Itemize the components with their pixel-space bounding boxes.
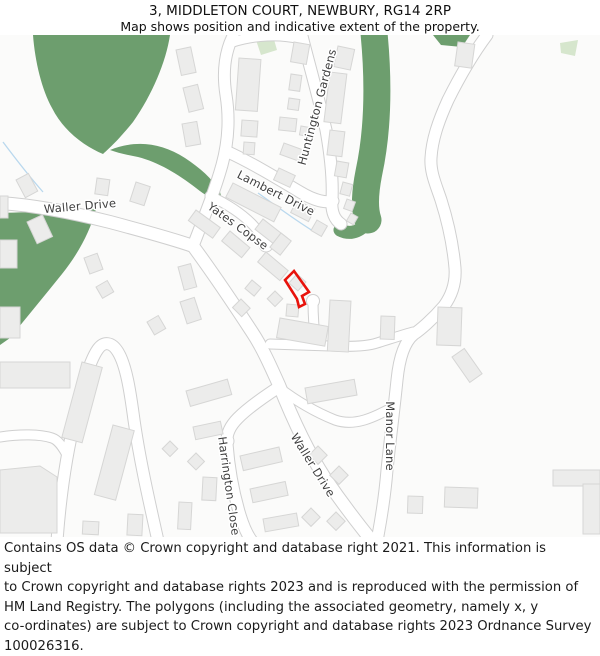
text-line: co-ordinates) are subject to Crown copyr… (4, 617, 596, 637)
building (178, 502, 192, 530)
cul-de-sac (307, 295, 319, 307)
building (243, 142, 255, 155)
building (334, 161, 348, 178)
map-canvas: Waller DriveLambert DriveYates CopseHunt… (0, 35, 600, 537)
building (0, 240, 17, 268)
map-header: 3, MIDDLETON COURT, NEWBURY, RG14 2RP Ma… (0, 0, 600, 35)
building (279, 117, 297, 132)
building (0, 466, 57, 533)
building (82, 521, 99, 535)
building (437, 307, 462, 346)
building (455, 42, 475, 68)
text-line: 100026316. (4, 637, 596, 656)
green-strip (365, 35, 377, 220)
building (327, 300, 351, 352)
building (286, 304, 299, 317)
building (202, 477, 217, 501)
building (289, 74, 302, 91)
building (235, 58, 261, 111)
building (241, 120, 258, 137)
copyright-notice: Contains OS data © Crown copyright and d… (0, 539, 596, 656)
page-title: 3, MIDDLETON COURT, NEWBURY, RG14 2RP (0, 0, 600, 19)
building (127, 514, 143, 536)
map-svg: Waller DriveLambert DriveYates CopseHunt… (0, 35, 600, 537)
building (95, 178, 110, 196)
text-line: Contains OS data © Crown copyright and d… (4, 539, 596, 578)
text-line: to Crown copyright and database rights 2… (4, 578, 596, 598)
building (407, 496, 423, 514)
building (291, 42, 310, 64)
page-subtitle: Map shows position and indicative extent… (0, 19, 600, 34)
building (327, 130, 345, 157)
page: 3, MIDDLETON COURT, NEWBURY, RG14 2RP Ma… (0, 0, 600, 625)
building (0, 196, 8, 218)
building (444, 487, 478, 508)
building (287, 98, 299, 110)
street-label: Manor Lane (383, 401, 397, 471)
building (0, 362, 70, 388)
building (380, 316, 395, 339)
building (583, 484, 600, 534)
building (0, 307, 20, 338)
text-line: HM Land Registry. The polygons (includin… (4, 598, 596, 618)
